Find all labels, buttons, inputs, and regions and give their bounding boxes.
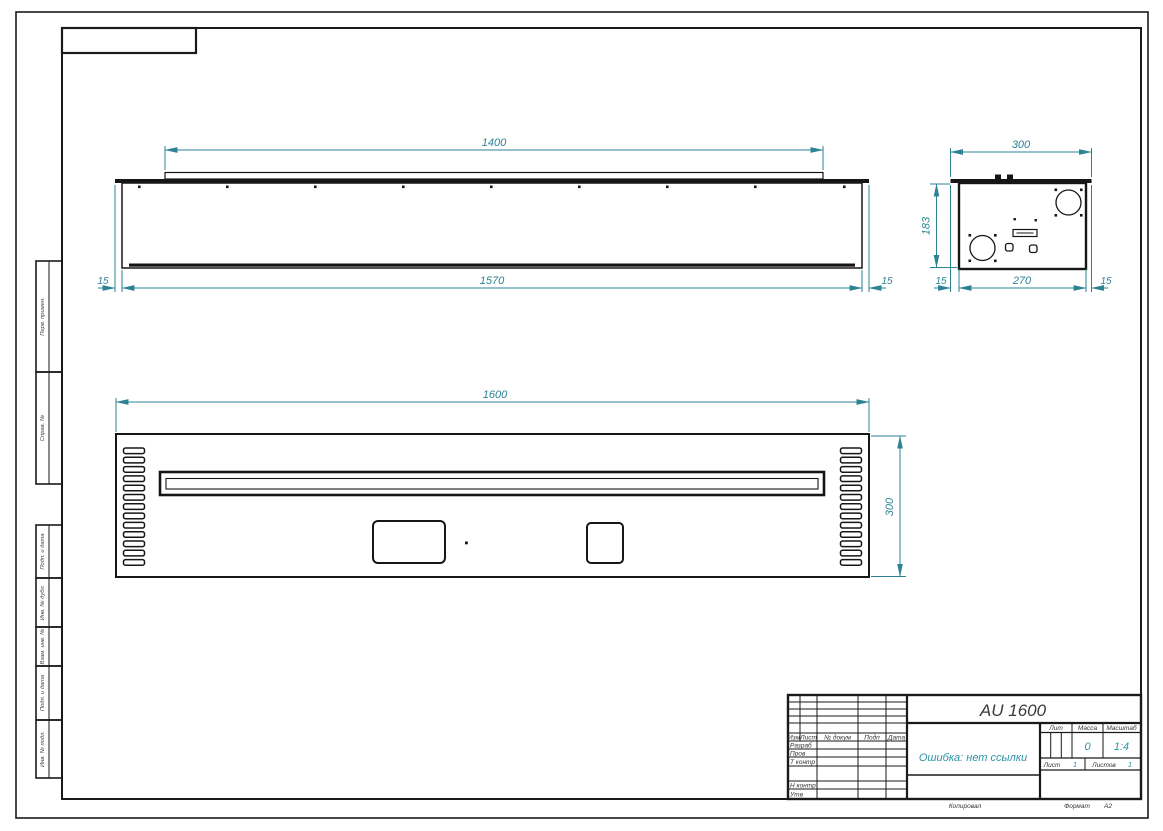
dim-value: 1400 (482, 137, 507, 149)
side-view-tab (995, 175, 1001, 180)
side-view: 300 183 15 270 15 (921, 139, 1112, 292)
dim-top-1570: 1570 15 15 (97, 185, 893, 292)
small-hole (1006, 244, 1014, 252)
margin-box-perv-primen: Перв. примен. (36, 261, 62, 372)
copied-label: Копировал (949, 803, 982, 810)
role-label: Пров (790, 751, 806, 758)
inner-frame (62, 28, 1141, 799)
margin-label: Взам. инв. № (40, 629, 46, 665)
mass-value: 0 (1084, 741, 1091, 753)
top-view-bottom-edge (129, 264, 855, 267)
access-cutout-large (373, 521, 445, 563)
margin-box-inv-podl: Инв. № подл. (36, 720, 62, 778)
margin-label: Справ. № (40, 415, 46, 441)
dim-value: 1600 (483, 389, 508, 401)
sheet-label: Лист (1043, 762, 1061, 769)
bottom-margin-labels: Копировал Формат А2 (949, 803, 1113, 810)
col-header: Подп (864, 734, 880, 742)
role-label: Утв (789, 792, 804, 799)
dim-value: 270 (1012, 275, 1032, 287)
top-left-stamp-box (62, 28, 196, 53)
top-view-raised-strip (165, 173, 823, 180)
side-view-body (959, 183, 1086, 269)
sheets-value: 1 (1128, 760, 1132, 769)
dim-top-1400: 1400 (165, 137, 823, 170)
drawing-canvas: Перв. примен. Справ. № Подп. и дата Инв.… (0, 0, 1163, 831)
dim-side-183: 183 (921, 184, 958, 268)
dim-front-1600: 1600 (116, 389, 869, 432)
lit-mass-scale-section: Лит Масса Масштаб 0 1:4 Лист 1 Листов 1 (1040, 723, 1141, 770)
pilot-hole (465, 542, 468, 545)
outer-border (16, 12, 1148, 818)
louvers-left (124, 448, 145, 565)
scale-label: Масштаб (1106, 724, 1137, 732)
access-cutout-small (587, 523, 623, 563)
fan-opening-top-right (1055, 189, 1083, 217)
margin-column: Перв. примен. Справ. № Подп. и дата Инв.… (36, 261, 62, 778)
dim-value: 183 (921, 216, 933, 235)
margin-box-podp-data-2: Подп. и дата (36, 666, 62, 720)
dim-value: 15 (935, 276, 947, 287)
lit-label: Лит (1048, 725, 1063, 732)
format-label: Формат (1064, 803, 1090, 810)
margin-box-inv-dubl: Инв. № дубл. (36, 578, 62, 627)
role-label: Н контр (790, 783, 816, 790)
dim-front-300: 300 (871, 436, 906, 577)
scale-value: 1:4 (1114, 741, 1129, 753)
title-block-header-row: Изм Лист № докум Подп Дата (788, 734, 905, 742)
dim-value: 1570 (480, 275, 505, 287)
burner-slot (160, 472, 824, 495)
mass-label: Масса (1078, 725, 1098, 732)
sheets-label: Листов (1091, 762, 1116, 769)
dim-value: 15 (97, 276, 109, 287)
role-label: Разраб (790, 742, 812, 750)
role-label: Т контр (790, 759, 815, 766)
col-header: Изм (788, 735, 801, 742)
louvers-right (841, 448, 862, 565)
title-block-role-rows: Разраб Пров Т контр Н контр Утв (789, 742, 816, 799)
drawing-sheet: Перв. примен. Справ. № Подп. и дата Инв.… (0, 0, 1163, 831)
dim-side-300: 300 (951, 139, 1092, 177)
dim-value: 15 (1100, 276, 1112, 287)
margin-box-sprav-no: Справ. № (36, 372, 62, 484)
fan-opening-bottom-left (969, 234, 997, 262)
top-view-body (122, 183, 862, 268)
small-hole (1030, 245, 1038, 253)
side-view-tab (1007, 175, 1013, 180)
margin-label: Инв. № подл. (40, 731, 46, 767)
format-value: А2 (1103, 803, 1112, 810)
side-view-center-cutouts (1006, 218, 1038, 253)
drawing-frame (16, 12, 1148, 818)
sheet-value: 1 (1073, 760, 1077, 769)
col-header: № докум (824, 734, 851, 742)
dim-value: 15 (881, 276, 893, 287)
top-view: 1400 1570 15 15 (97, 137, 893, 292)
title-block: Изм Лист № докум Подп Дата Разраб Пров Т… (788, 695, 1141, 810)
front-view-body (116, 434, 869, 577)
front-view: 1600 300 (116, 389, 906, 577)
drawing-title: AU 1600 (979, 701, 1047, 720)
top-view-mounting-holes (138, 186, 846, 189)
document-note: Ошибка: нет ссылки (919, 752, 1027, 764)
margin-label: Перв. примен. (40, 297, 46, 336)
col-header: Лист (799, 735, 817, 742)
col-header: Дата (887, 735, 906, 742)
dim-value: 300 (884, 497, 896, 516)
margin-label: Подп. и дата (40, 674, 46, 711)
margin-label: Инв. № дубл. (40, 585, 46, 621)
margin-box-vzam-inv: Взам. инв. № (36, 627, 62, 666)
margin-label: Подп. и дата (40, 533, 46, 570)
dim-value: 300 (1012, 139, 1031, 151)
margin-box-podp-data-1: Подп. и дата (36, 525, 62, 578)
